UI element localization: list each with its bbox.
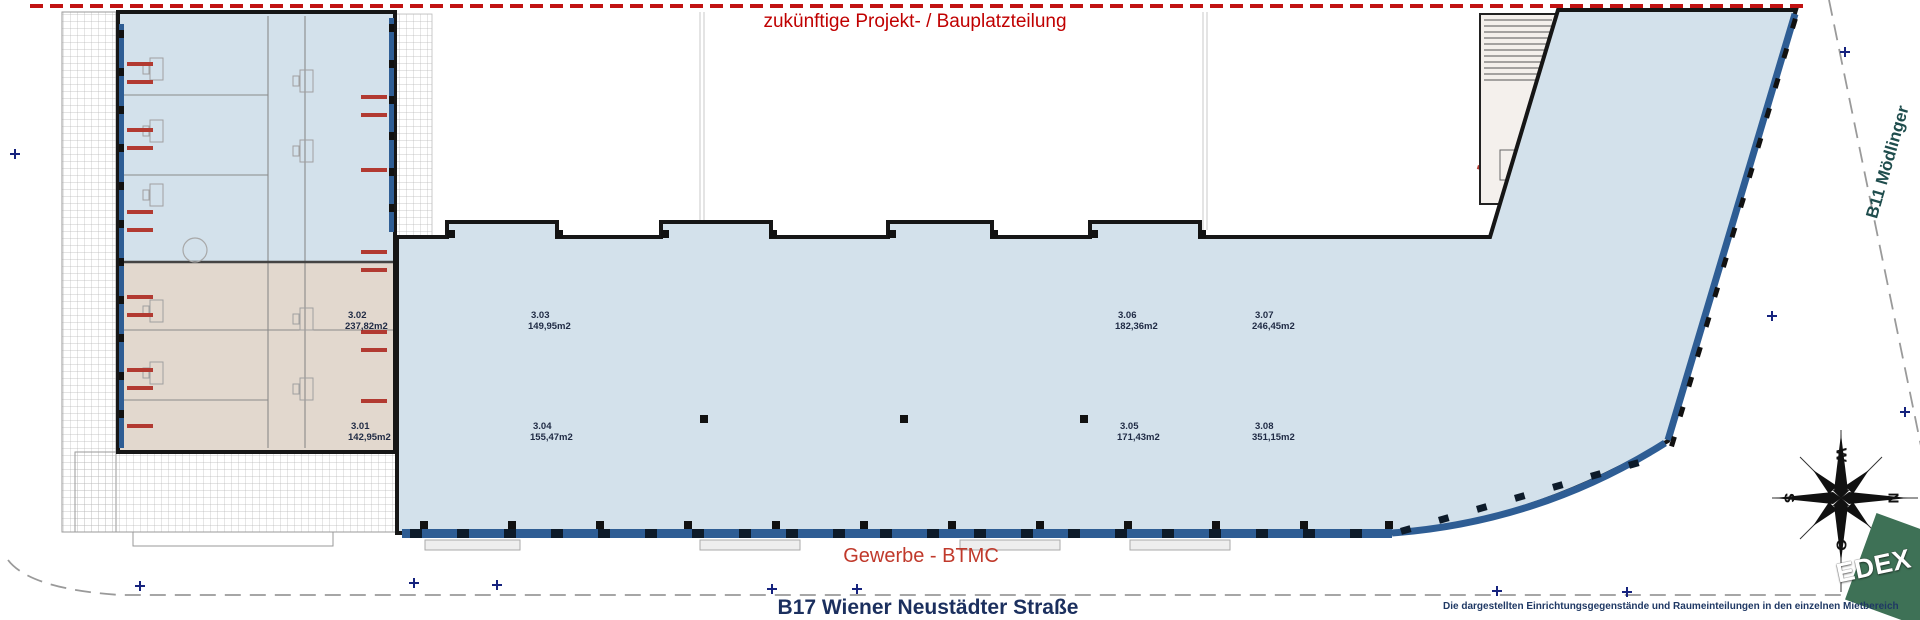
room-label: 3.05171,43m2 <box>1117 421 1160 443</box>
svg-text:S: S <box>1781 493 1798 503</box>
disclaimer-text: Die dargestellten Einrichtungsgegenständ… <box>1443 601 1899 612</box>
plot-division-lines <box>700 12 1207 230</box>
future-division-label: zukünftige Projekt- / Bauplatzteilung <box>763 11 1066 33</box>
gewerbe-zone-label: Gewerbe - BTMC <box>843 545 999 568</box>
room-label: 3.04155,47m2 <box>530 421 573 443</box>
room-label: 3.01142,95m2 <box>348 421 391 443</box>
room-label: 3.03149,95m2 <box>528 310 571 332</box>
svg-text:O: O <box>1833 539 1850 551</box>
room-label: 3.08351,15m2 <box>1252 421 1295 443</box>
svg-text:N: N <box>1885 493 1902 504</box>
street-label-b17: B17 Wiener Neustädter Straße <box>778 596 1079 620</box>
svg-text:W: W <box>1833 448 1850 463</box>
room-label: 3.06182,36m2 <box>1115 310 1158 332</box>
floor-plan-drawing: WNOS <box>0 0 1920 620</box>
room-label: 3.02237,82m2 <box>345 310 388 332</box>
floorplan-canvas: WNOS zukünftige Projekt- / Bauplatzteilu… <box>0 0 1920 620</box>
room-label: 3.07246,45m2 <box>1252 310 1295 332</box>
